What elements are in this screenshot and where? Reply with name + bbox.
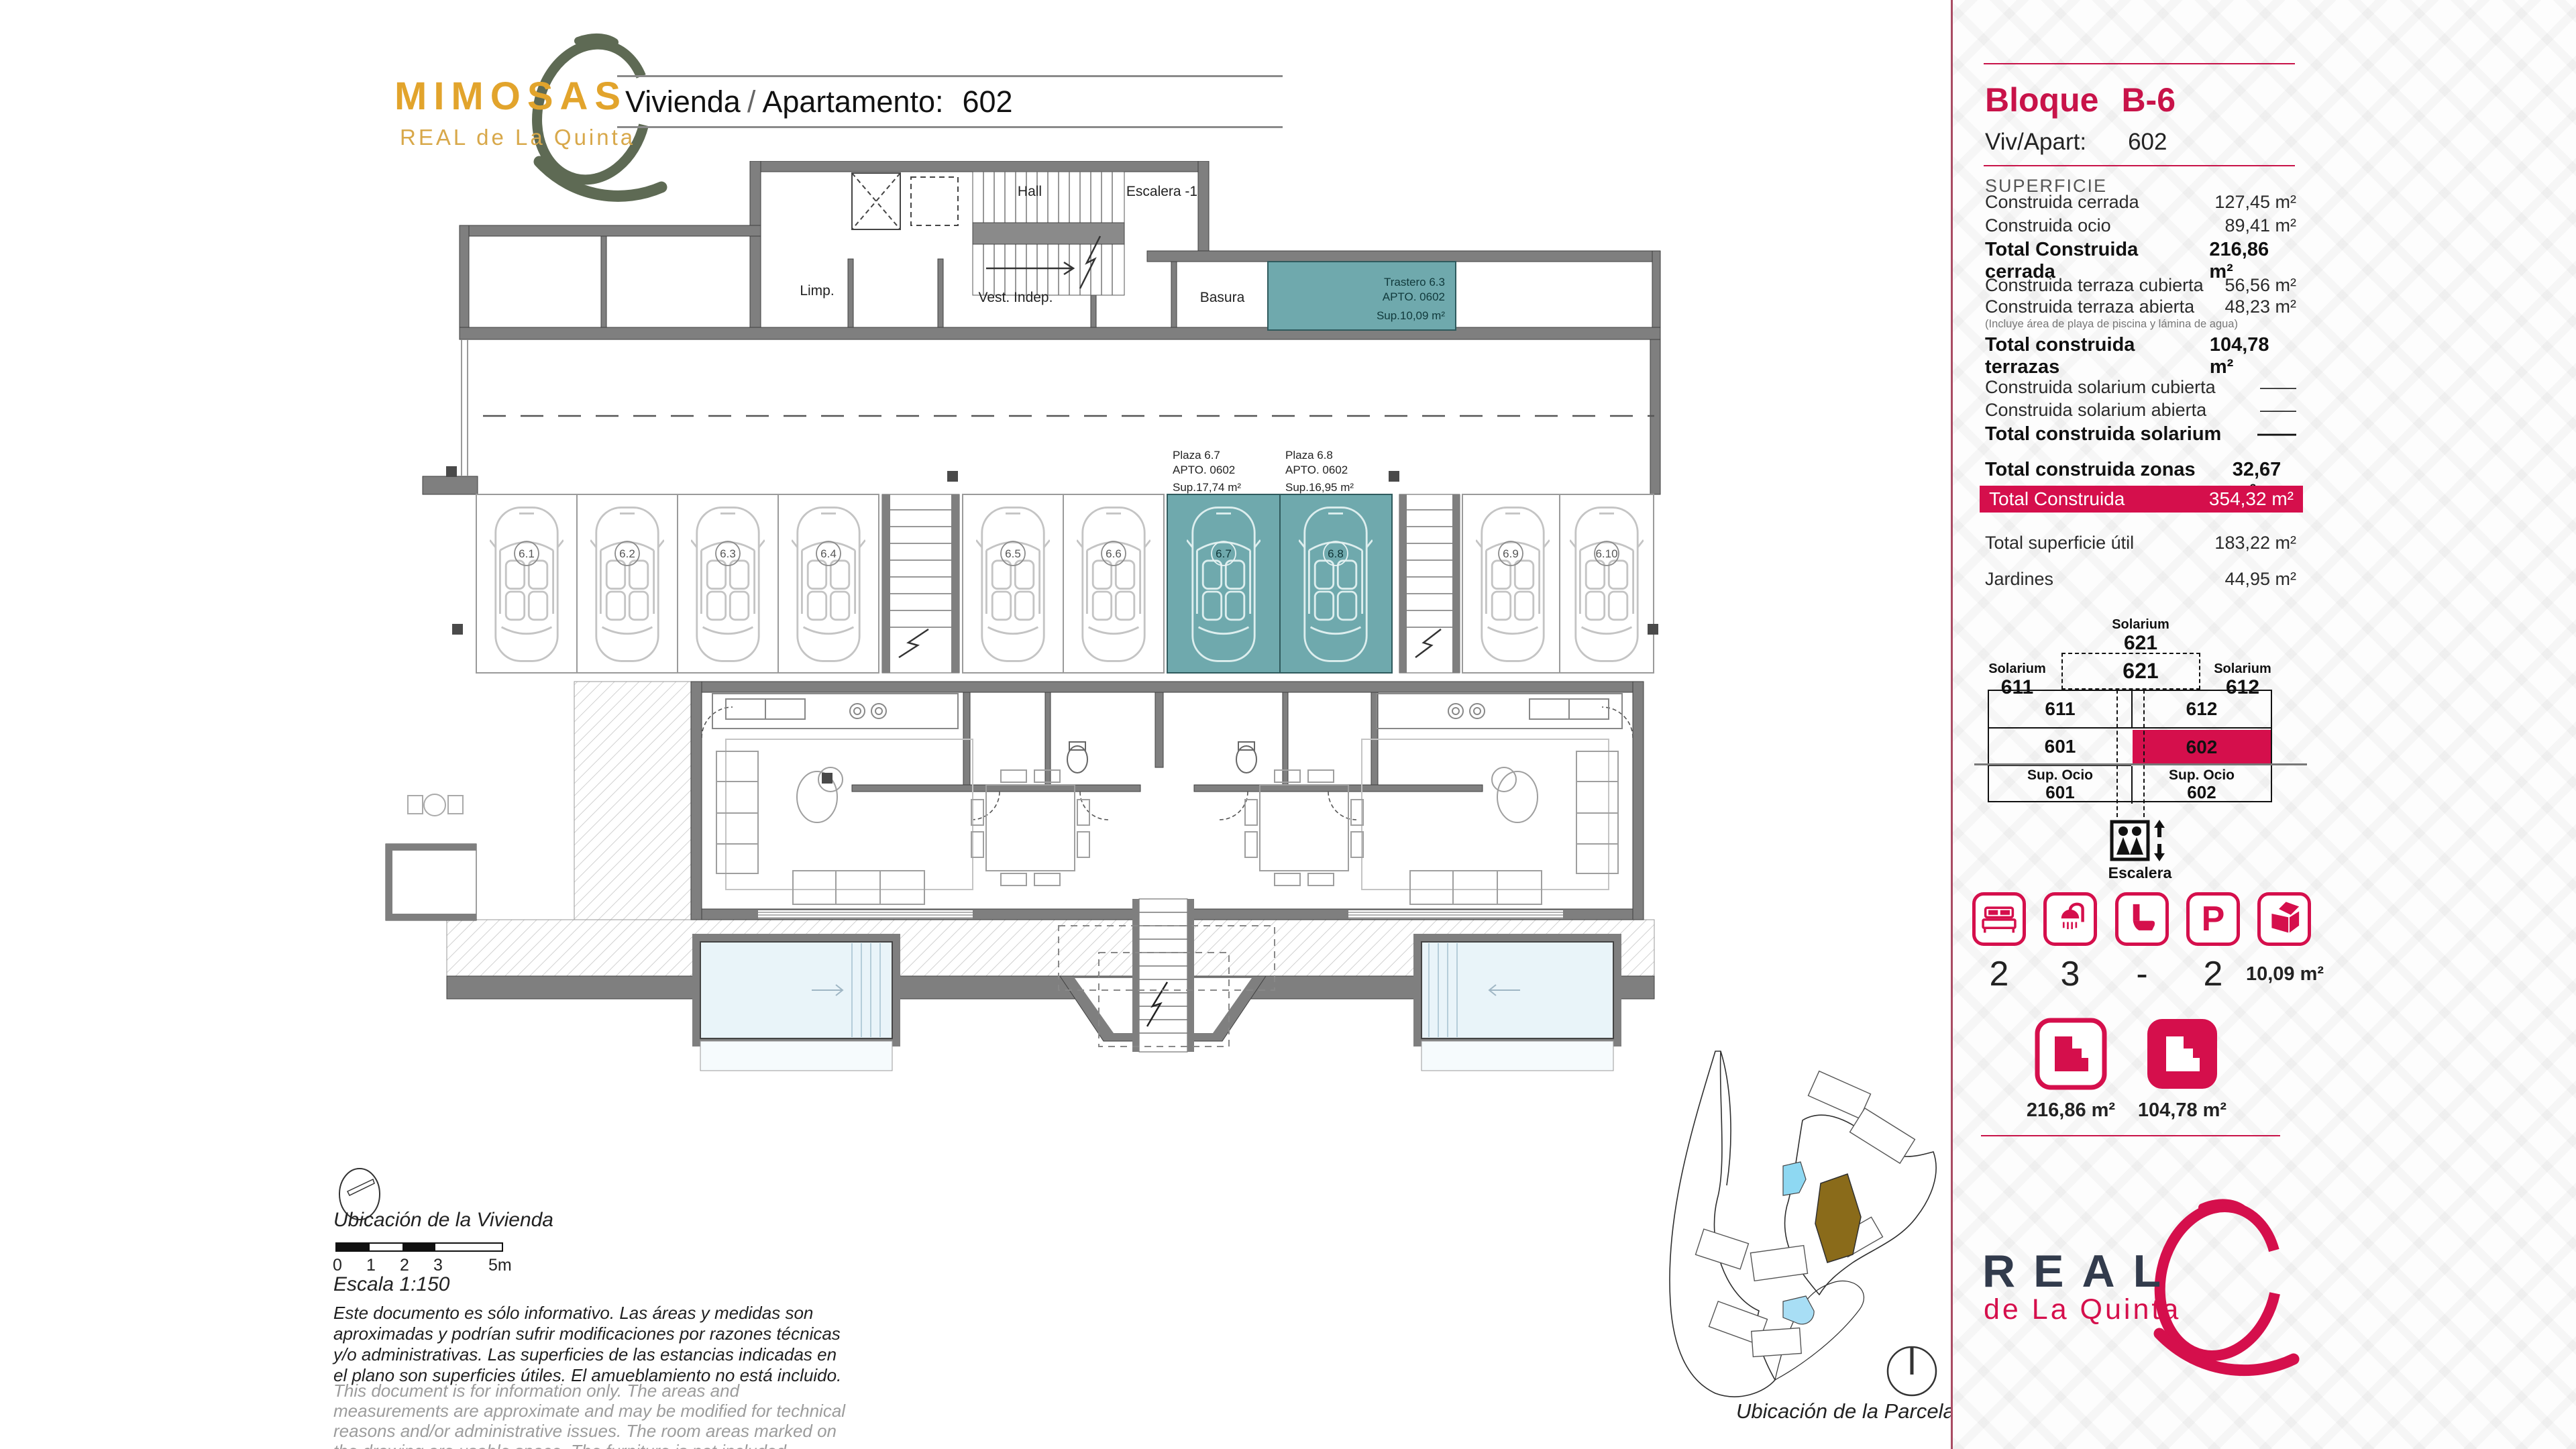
- row-label: Construida solarium cubierta: [1985, 377, 2216, 398]
- total-value: 354,32 m²: [2209, 488, 2294, 510]
- row-label: Construida terraza cubierta: [1985, 275, 2204, 296]
- cell-supocio-602: Sup. Ocio 602: [2131, 766, 2271, 804]
- room-hall: Hall: [1018, 184, 1042, 199]
- title-separator: /: [741, 85, 763, 119]
- supocio-label: Sup. Ocio: [2169, 767, 2235, 783]
- row-value: 104,78 m²: [2210, 334, 2296, 378]
- cell-612: 612: [2131, 691, 2271, 729]
- brochure-page: MIMOSAS REAL de La Quinta Vivienda/Apart…: [0, 0, 2576, 1449]
- brand-name: MIMOSAS: [394, 74, 627, 119]
- parking-row: 6.1 6.2 6.3 6.4 6.5 6.6 6.9 6.10 6.7 6.8: [476, 494, 1654, 673]
- scale-bar: 0 1 2 3 5m: [335, 1242, 510, 1276]
- pool-marker-upper: [1783, 1162, 1806, 1195]
- highlighted-block: [1815, 1174, 1861, 1263]
- real-logo: REAL de La Quinta: [1953, 1181, 2576, 1409]
- disclaimer-en: This document is for information only. T…: [333, 1381, 857, 1449]
- plaza67-line3: Sup.17,74 m²: [1173, 481, 1241, 494]
- space-number: 6.3: [720, 547, 736, 560]
- room-basura: Basura: [1200, 290, 1245, 305]
- solarium-621-label: Solarium: [2100, 617, 2181, 632]
- trastero-room: Trastero 6.3 APTO. 0602 Sup.10,09 m²: [1268, 262, 1456, 330]
- unit-grid: 611 612 601 602 Sup. Ocio 601 Sup. Ocio …: [1988, 690, 2272, 802]
- space-number: 6.1: [519, 547, 535, 560]
- block-value: B-6: [2121, 81, 2176, 119]
- pool-marker-lower: [1783, 1296, 1814, 1324]
- unit-value: 602: [2128, 129, 2167, 156]
- block-diagram: Solarium 621 621 Solarium 611 Solarium 6…: [1985, 617, 2296, 885]
- terrace-area-icon: [2146, 1018, 2218, 1090]
- solarium-612-label: Solarium: [2202, 661, 2283, 676]
- plaza-labels: Plaza 6.7 APTO. 0602 Sup.17,74 m² Plaza …: [1173, 449, 1354, 494]
- pool-left: [692, 934, 900, 1071]
- stairs-parking-gap-left: [882, 494, 959, 673]
- cell-611: 611: [1989, 691, 2131, 729]
- scale-tick: 3: [433, 1256, 443, 1275]
- closed-area-icon: [2035, 1018, 2107, 1090]
- amenities-row: P 2 3 - 2 10,09 m²: [1968, 892, 2330, 1000]
- driveway-opening: [462, 339, 468, 476]
- row-value: 127,45 m²: [2214, 192, 2296, 213]
- plaza67-line2: APTO. 0602: [1173, 464, 1235, 476]
- title-unit-number: 602: [943, 85, 1012, 119]
- row-label: Construida cerrada: [1985, 192, 2139, 213]
- title-rule-bottom: [617, 126, 1283, 128]
- stairs-parking-gap-right: [1399, 494, 1460, 673]
- floor-area-icons: 216,86 m² 104,78 m²: [2035, 1018, 2236, 1138]
- row-value: 56,56 m²: [2224, 275, 2296, 296]
- closed-area-value: 216,86 m²: [2017, 1099, 2125, 1122]
- space-number: 6.4: [820, 547, 837, 560]
- site-compass-icon: [1888, 1347, 1936, 1395]
- storage-area: 10,09 m²: [2241, 963, 2328, 985]
- trastero-line2: APTO. 0602: [1383, 290, 1445, 303]
- room-vest: Vest. Indep.: [979, 290, 1053, 305]
- space-number: 6.2: [619, 547, 635, 560]
- floor-plan: Trastero 6.3 APTO. 0602 Sup.10,09 m² Hal…: [382, 161, 1664, 1100]
- room-limp: Limp.: [800, 283, 834, 299]
- title-rule-top: [617, 75, 1283, 77]
- row-label: Construida solarium abierta: [1985, 400, 2206, 421]
- plaza68-line2: APTO. 0602: [1285, 464, 1348, 476]
- row-label: Construida ocio: [1985, 215, 2111, 236]
- site-plan: [1652, 1041, 1953, 1407]
- space-number: 6.6: [1106, 547, 1122, 560]
- trastero-line3: Sup.10,09 m²: [1377, 309, 1445, 322]
- unit-label: Viv/Apart:: [1985, 129, 2086, 155]
- supocio-num: 602: [2187, 783, 2216, 802]
- cell-supocio-601: Sup. Ocio 601: [1989, 766, 2131, 804]
- row-label: Total superficie útil: [1985, 533, 2134, 553]
- row-label: Total construida terrazas: [1985, 334, 2210, 378]
- block-title: BloqueB-6: [1985, 80, 2176, 119]
- plaza67-line1: Plaza 6.7: [1173, 449, 1220, 462]
- parking-icon: P: [2186, 892, 2240, 946]
- unit-line: Viv/Apart:602: [1985, 129, 2167, 156]
- elevator-icon: [2110, 820, 2173, 861]
- apartment-block: [691, 682, 1644, 920]
- real-wordmark: REAL: [1982, 1245, 2179, 1297]
- escalera-label: Escalera: [2096, 864, 2184, 882]
- row-value: ——: [2257, 423, 2296, 445]
- plaza68-line1: Plaza 6.8: [1285, 449, 1333, 462]
- box-621: 621: [2100, 659, 2181, 683]
- solarium-621-num: 621: [2100, 632, 2181, 654]
- brand-subtitle: REAL de La Quinta: [400, 125, 635, 150]
- scale-tick: 1: [366, 1256, 376, 1275]
- cell-602-highlight: 602: [2133, 730, 2271, 765]
- scale-caption: Escala 1:150: [333, 1273, 449, 1296]
- parking-letter: P: [2202, 899, 2225, 939]
- space-number: 6.10: [1595, 547, 1617, 560]
- row-label: Construida terraza abierta: [1985, 297, 2194, 317]
- superficie-table: Construida cerrada127,45 m² Construida o…: [1985, 192, 2296, 608]
- total-construida-bar: Total Construida354,32 m²: [1980, 486, 2303, 513]
- block-label: Bloque: [1985, 81, 2098, 119]
- trastero-line1: Trastero 6.3: [1384, 276, 1445, 288]
- disclaimer-es: Este documento es sólo informativo. Las …: [333, 1303, 850, 1386]
- space-number: 6.5: [1005, 547, 1021, 560]
- scale-tick: 2: [400, 1256, 409, 1275]
- row-label: Total construida solarium: [1985, 423, 2221, 445]
- row-value: 44,95 m²: [2224, 569, 2296, 590]
- accent-rule-3: [1981, 1135, 2280, 1136]
- shower-icon: [2043, 892, 2097, 946]
- toilet-icon: [2115, 892, 2169, 946]
- storage-icon: [2257, 892, 2311, 946]
- row-value: ——: [2260, 400, 2296, 421]
- row-value: ——: [2260, 377, 2296, 398]
- space-number: 6.9: [1503, 547, 1519, 560]
- scale-tick: 5m: [488, 1256, 512, 1275]
- left-annex: [386, 794, 476, 920]
- stairs-upper: [973, 172, 1124, 295]
- cell-601: 601: [1989, 729, 2131, 766]
- row-label: Jardines: [1985, 569, 2053, 590]
- row-value: 89,41 m²: [2224, 215, 2296, 236]
- terrace-area-value: 104,78 m²: [2129, 1099, 2236, 1122]
- space-number: 6.8: [1328, 547, 1344, 560]
- accent-rule-top: [1984, 63, 2295, 64]
- supocio-num: 601: [2045, 783, 2074, 802]
- supocio-label: Sup. Ocio: [2027, 767, 2093, 783]
- title-apartamento: Apartamento:: [762, 85, 943, 119]
- parking-count: 2: [2186, 954, 2240, 994]
- plaza68-line3: Sup.16,95 m²: [1285, 481, 1354, 494]
- shower-count: 3: [2043, 954, 2097, 994]
- bed-icon: [1972, 892, 2026, 946]
- info-sidebar: BloqueB-6 Viv/Apart:602 SUPERFICIE Const…: [1951, 0, 2576, 1449]
- title-vivienda: Vivienda: [625, 85, 741, 119]
- space-number: 6.7: [1216, 547, 1232, 560]
- room-escalera: Escalera -1: [1126, 184, 1197, 199]
- scale-tick: 0: [333, 1256, 342, 1275]
- toilet-count: -: [2115, 954, 2169, 994]
- row-value: 48,23 m²: [2224, 297, 2296, 317]
- elevator-shaft: [852, 173, 958, 229]
- location-parcel-caption: Ubicación de la Parcela: [1736, 1399, 1955, 1424]
- real-sub-wordmark: de La Quinta: [1984, 1293, 2181, 1326]
- page-title: Vivienda/Apartamento:602: [625, 85, 1013, 119]
- accent-rule-2: [1984, 165, 2295, 166]
- location-home-caption: Ubicación de la Vivienda: [333, 1209, 553, 1232]
- table-note: (Incluye área de playa de piscina y lámi…: [1985, 318, 2238, 331]
- total-label: Total Construida: [1989, 488, 2125, 510]
- solarium-611-label: Solarium: [1977, 661, 2057, 676]
- bed-count: 2: [1972, 954, 2026, 994]
- pool-right: [1413, 934, 1621, 1071]
- row-value: 183,22 m²: [2214, 533, 2296, 553]
